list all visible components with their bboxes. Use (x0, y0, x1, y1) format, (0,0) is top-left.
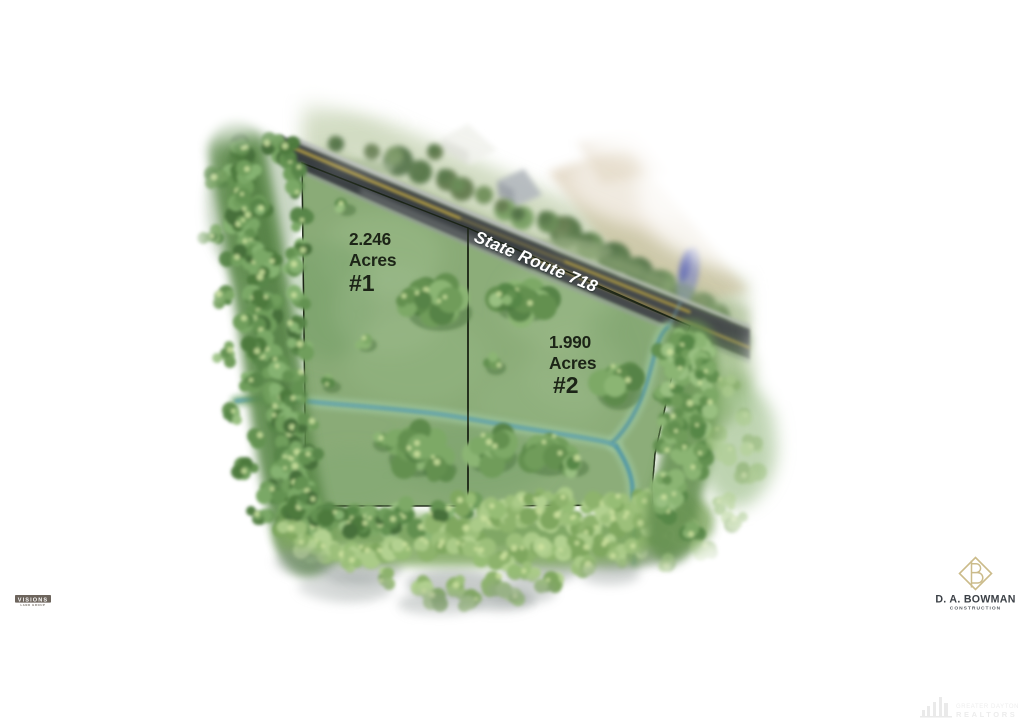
svg-text:#2: #2 (553, 372, 579, 398)
svg-text:D. A. BOWMAN: D. A. BOWMAN (935, 594, 1015, 606)
svg-text:Acres: Acres (349, 250, 396, 270)
svg-text:1.990: 1.990 (549, 332, 591, 352)
svg-text:REALTORS: REALTORS (956, 710, 1017, 719)
svg-text:2.246: 2.246 (349, 229, 391, 249)
svg-text:CONSTRUCTION: CONSTRUCTION (950, 605, 1001, 611)
svg-text:LAND GROUP: LAND GROUP (20, 603, 45, 607)
svg-text:Acres: Acres (549, 353, 596, 373)
svg-text:VISIONS: VISIONS (18, 597, 48, 603)
svg-text:#1: #1 (349, 270, 375, 296)
